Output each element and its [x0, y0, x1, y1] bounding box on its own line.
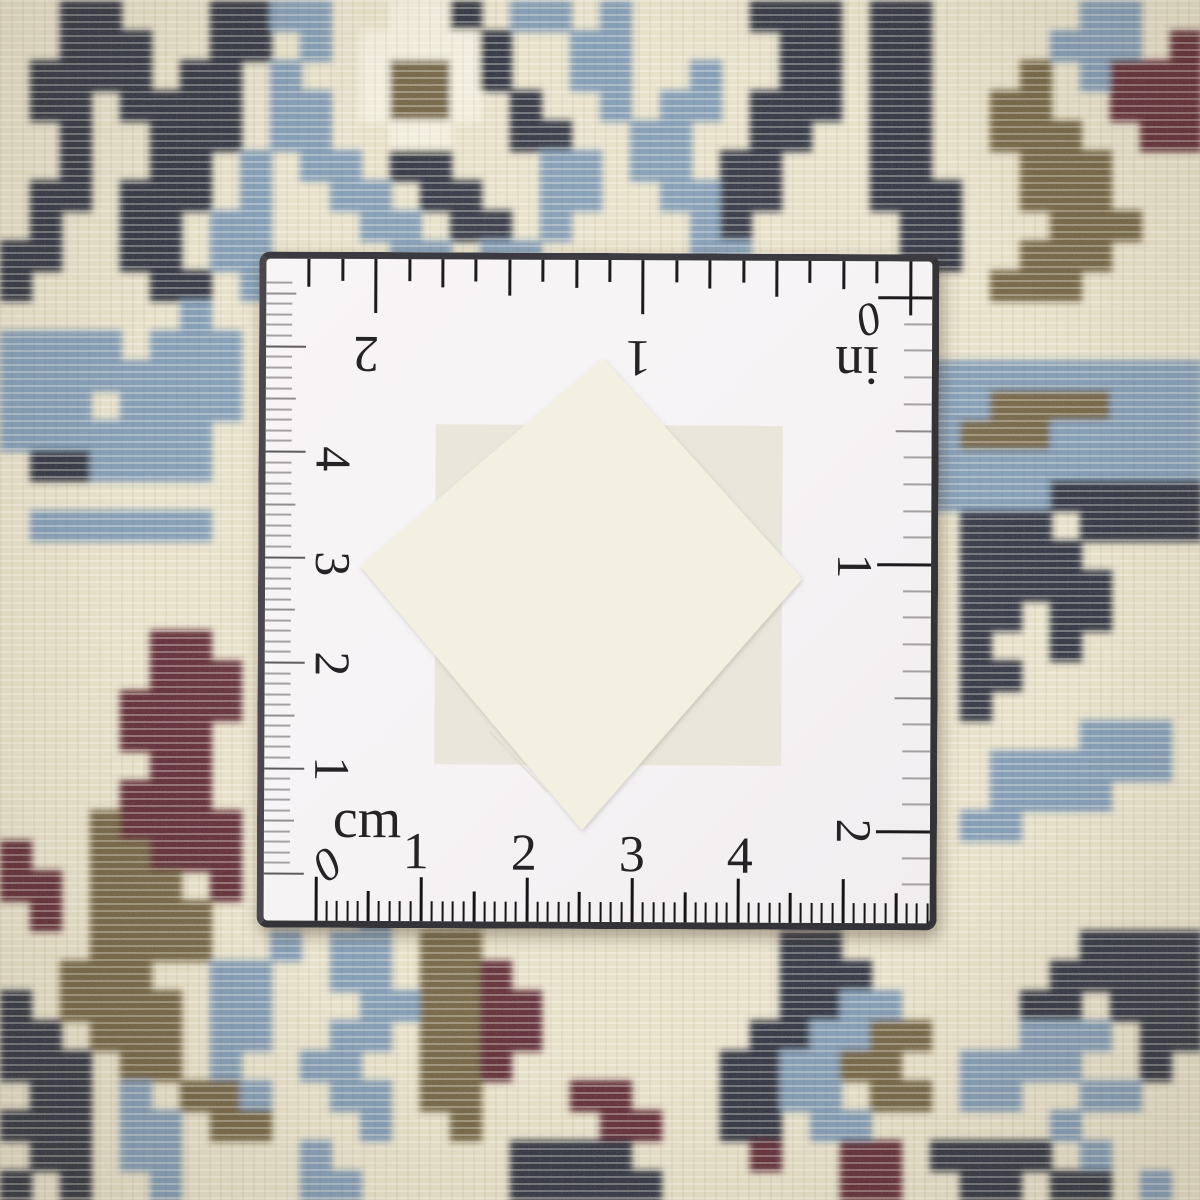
- right-inch-label-2: 2: [829, 819, 879, 844]
- top-inch-label-1: 1: [625, 331, 651, 383]
- left-cm-label-3: 3: [308, 551, 358, 576]
- square-ruler: 2 1 0 in 1 2 4 3 2 1 cm 0 1 2 3 4: [257, 252, 940, 931]
- cm-unit-label: cm: [333, 791, 402, 847]
- left-cm-label-2: 2: [308, 651, 358, 676]
- carpet-photo-scene: 2 1 0 in 1 2 4 3 2 1 cm 0 1 2 3 4: [0, 0, 1200, 1200]
- bottom-cm-label-1: 1: [403, 826, 429, 878]
- left-cm-label-4: 4: [309, 446, 359, 471]
- bottom-cm-label-3: 3: [619, 829, 645, 881]
- inch-unit-label: in: [835, 337, 879, 393]
- bottom-cm-label-4: 4: [727, 831, 753, 883]
- bottom-cm-label-2: 2: [511, 828, 537, 880]
- left-cm-label-1: 1: [307, 756, 357, 781]
- top-inch-label-2: 2: [353, 327, 379, 379]
- right-inch-label-1: 1: [830, 554, 880, 579]
